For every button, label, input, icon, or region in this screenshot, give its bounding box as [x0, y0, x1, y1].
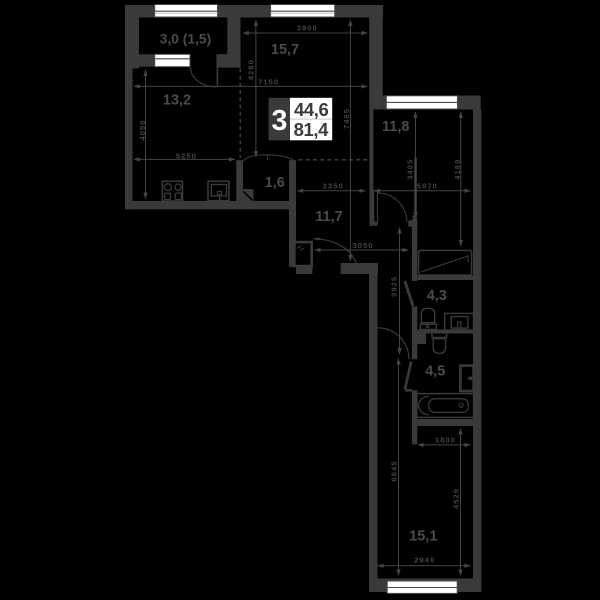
svg-text:4,3: 4,3 — [427, 288, 447, 304]
svg-text:3405: 3405 — [405, 159, 414, 180]
svg-text:11,7: 11,7 — [315, 209, 342, 225]
svg-text:2250: 2250 — [323, 182, 344, 191]
svg-text:5250: 5250 — [176, 151, 197, 160]
svg-text:4050: 4050 — [138, 119, 147, 140]
svg-text:1800: 1800 — [435, 436, 456, 445]
svg-text:15,7: 15,7 — [271, 42, 299, 58]
svg-text:3050: 3050 — [352, 241, 373, 250]
svg-text:3925: 3925 — [390, 276, 399, 297]
svg-text:6645: 6645 — [389, 460, 398, 481]
svg-text:4280: 4280 — [246, 59, 255, 80]
svg-text:4180: 4180 — [453, 159, 462, 180]
svg-text:7150: 7150 — [258, 78, 279, 87]
svg-text:81,4: 81,4 — [294, 119, 330, 140]
svg-text:3,0 (1,5): 3,0 (1,5) — [160, 32, 211, 47]
svg-text:3900: 3900 — [297, 24, 318, 33]
svg-text:1,6: 1,6 — [265, 175, 285, 191]
svg-text:4520: 4520 — [452, 488, 461, 509]
svg-text:4,5: 4,5 — [425, 364, 445, 380]
svg-text:15,1: 15,1 — [409, 529, 437, 545]
svg-text:7465: 7465 — [342, 108, 351, 129]
svg-text:5070: 5070 — [417, 182, 438, 191]
svg-text:2940: 2940 — [414, 555, 435, 564]
svg-text:3: 3 — [271, 105, 287, 137]
svg-text:11,8: 11,8 — [382, 119, 409, 135]
svg-text:13,2: 13,2 — [163, 93, 191, 109]
svg-text:44,6: 44,6 — [294, 99, 329, 120]
